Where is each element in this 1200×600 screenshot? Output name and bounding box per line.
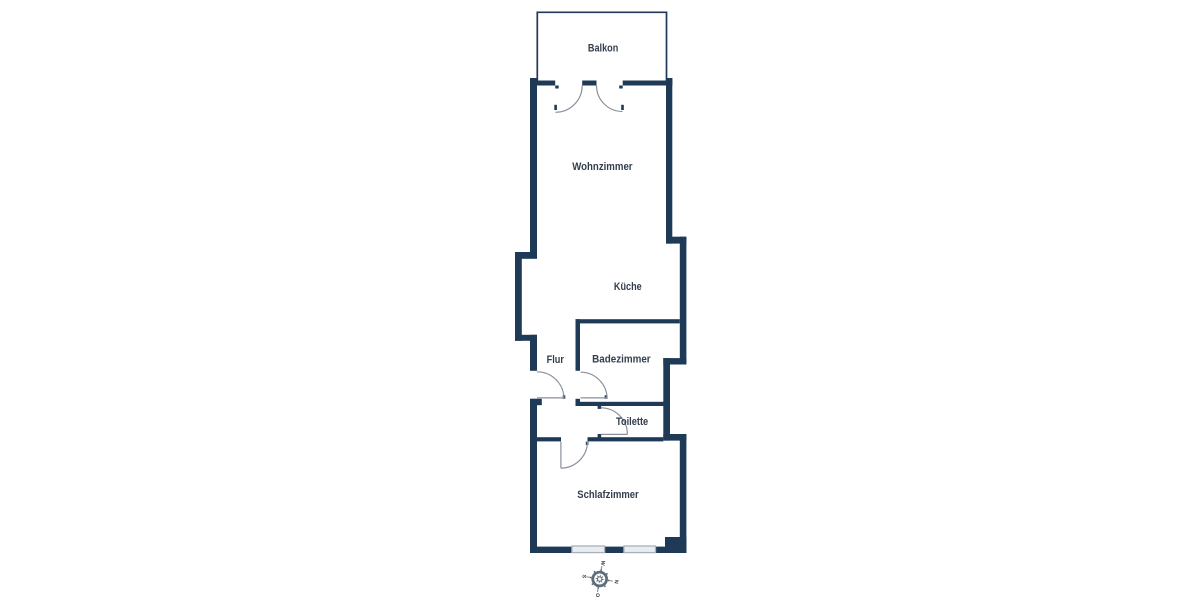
- svg-text:Schlafzimmer: Schlafzimmer: [577, 489, 639, 501]
- svg-text:Küche: Küche: [614, 281, 642, 293]
- svg-text:Wohnzimmer: Wohnzimmer: [572, 161, 633, 173]
- svg-text:Flur: Flur: [547, 354, 565, 366]
- svg-text:O: O: [594, 593, 601, 598]
- svg-text:W: W: [599, 560, 606, 566]
- svg-text:Toilette: Toilette: [616, 416, 648, 428]
- svg-text:Balkon: Balkon: [588, 42, 619, 54]
- svg-text:N: N: [612, 579, 619, 584]
- svg-text:Badezimmer: Badezimmer: [592, 354, 651, 366]
- svg-text:S: S: [580, 574, 587, 579]
